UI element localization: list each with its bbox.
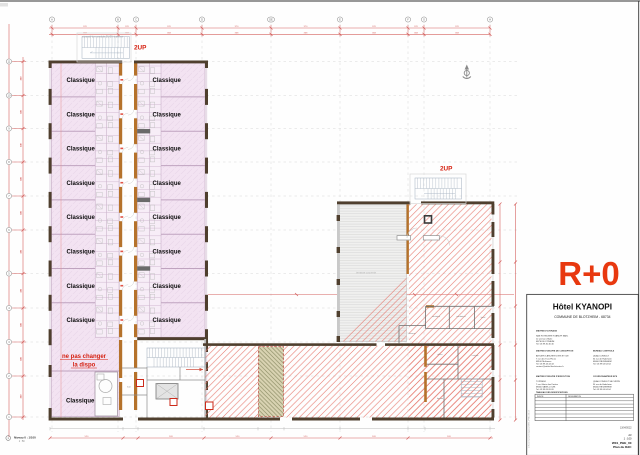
svg-text:vestiaire: vestiaire xyxy=(432,315,441,318)
svg-text:Classique: Classique xyxy=(67,250,96,256)
svg-text:Classique: Classique xyxy=(153,215,182,221)
svg-text:34 rue de Habsheim: 34 rue de Habsheim xyxy=(593,357,612,360)
svg-text:G: G xyxy=(423,18,425,22)
svg-text:BUREAU CONTROLE: BUREAU CONTROLE xyxy=(593,350,615,353)
svg-text:Classique: Classique xyxy=(67,78,96,84)
svg-text:MAITRE D'OUVRAGE: MAITRE D'OUVRAGE xyxy=(536,330,558,333)
svg-text:Classique: Classique xyxy=(153,318,182,324)
svg-text:Tel. 03 89 69 69 69: Tel. 03 89 69 69 69 xyxy=(536,389,555,391)
svg-text:Plan du RdC: Plan du RdC xyxy=(613,445,632,449)
svg-text:Hôtel KYANOPI: Hôtel KYANOPI xyxy=(553,303,612,312)
svg-text:contact@atelier3architectes.fr: contact@atelier3architectes.fr xyxy=(536,365,564,368)
svg-text:INDICE: INDICE xyxy=(537,396,544,398)
svg-text:DE: DE xyxy=(269,18,273,22)
svg-text:A3: A3 xyxy=(628,433,632,437)
svg-text:Tel. 03 89 40 40 40: Tel. 03 89 40 40 40 xyxy=(536,344,555,346)
svg-text:COORDONNATEUR SPS: COORDONNATEUR SPS xyxy=(593,375,618,378)
svg-text:7 rue des Trois Fleurs: 7 rue des Trois Fleurs xyxy=(536,357,556,360)
svg-text:réserve: réserve xyxy=(408,332,416,335)
svg-text:ATELIER 3 ARCHITECTES ET CIE: ATELIER 3 ARCHITECTES ET CIE xyxy=(536,355,569,358)
svg-text:MAITRE D'OEUVRE D'EXECUTION: MAITRE D'OEUVRE D'EXECUTION xyxy=(536,375,571,378)
svg-text:Classique: Classique xyxy=(67,318,96,324)
svg-text:34 rue de Habsheim: 34 rue de Habsheim xyxy=(593,383,612,386)
svg-text:Classique: Classique xyxy=(66,399,95,405)
svg-text:QUALICONSULT SECURITE: QUALICONSULT SECURITE xyxy=(593,380,621,383)
svg-text:Classique: Classique xyxy=(153,147,182,153)
svg-text:sanitaires: sanitaires xyxy=(456,315,466,318)
svg-text:2UP: 2UP xyxy=(440,166,453,173)
svg-text:MAITRE D'OEUVRE DE CONCEPTION: MAITRE D'OEUVRE DE CONCEPTION xyxy=(536,350,574,353)
svg-text:Classique: Classique xyxy=(153,284,182,290)
svg-text:C: C xyxy=(135,18,137,22)
svg-text:E: E xyxy=(339,18,341,22)
svg-text:Classique: Classique xyxy=(153,78,182,84)
svg-text:Classique: Classique xyxy=(153,181,182,187)
svg-text:Classique: Classique xyxy=(67,215,96,221)
svg-text:QUALICONSULT: QUALICONSULT xyxy=(593,355,610,358)
svg-text:12 avenue d'Italie: 12 avenue d'Italie xyxy=(536,337,553,340)
svg-text:terrasse couverte: terrasse couverte xyxy=(356,271,377,275)
svg-text:hall: hall xyxy=(127,387,131,389)
svg-text:H: H xyxy=(489,18,491,22)
svg-text:la dispo: la dispo xyxy=(73,363,96,369)
svg-text:Tel. 03 89 64 64 64: Tel. 03 89 64 64 64 xyxy=(593,389,612,391)
svg-text:1 : 50: 1 : 50 xyxy=(19,441,25,443)
svg-text:Classique: Classique xyxy=(67,147,96,153)
svg-text:A: A xyxy=(51,18,53,22)
svg-text:7 rue Glacis des Fortins: 7 rue Glacis des Fortins xyxy=(536,383,558,386)
svg-text:local: local xyxy=(481,317,486,319)
svg-text:ne pas changer: ne pas changer xyxy=(62,354,107,360)
svg-text:office: office xyxy=(437,354,443,356)
svg-text:Classique: Classique xyxy=(153,112,182,118)
svg-text:B: B xyxy=(117,18,119,22)
svg-text:cuisine: cuisine xyxy=(472,355,480,357)
svg-text:DESIGNATION: DESIGNATION xyxy=(568,395,582,398)
svg-text:Classique: Classique xyxy=(67,181,96,187)
svg-text:Classique: Classique xyxy=(67,112,96,118)
svg-text:COMMUNE DE BLOTZHEIM - 68734: COMMUNE DE BLOTZHEIM - 68734 xyxy=(554,315,610,319)
svg-text:1 : 100: 1 : 100 xyxy=(624,437,632,441)
svg-text:68300 SAINT-LOUIS: 68300 SAINT-LOUIS xyxy=(536,385,556,388)
svg-text:Classique: Classique xyxy=(67,284,96,290)
svg-text:Classique: Classique xyxy=(153,250,182,256)
svg-text:R+0: R+0 xyxy=(558,255,619,292)
svg-text:D: D xyxy=(201,18,203,22)
svg-text:TABLEAU DES MODIFICATIONS: TABLEAU DES MODIFICATIONS xyxy=(536,391,568,394)
svg-text:13/04/2022: 13/04/2022 xyxy=(620,427,632,429)
svg-text:SAS HOTELIERE KYANOPI SARL: SAS HOTELIERE KYANOPI SARL xyxy=(536,335,569,338)
svg-text:C:\Users\projets\kyanopi\W01_P: C:\Users\projets\kyanopi\W01_PHE_00.rvt xyxy=(528,410,531,448)
svg-text:2UP: 2UP xyxy=(134,45,147,52)
svg-text:Niveau 0 : 1/100: Niveau 0 : 1/100 xyxy=(14,436,36,440)
svg-text:locaux: locaux xyxy=(437,398,444,400)
svg-text:Tel. 03 89 64 64 64: Tel. 03 89 64 64 64 xyxy=(593,364,612,366)
